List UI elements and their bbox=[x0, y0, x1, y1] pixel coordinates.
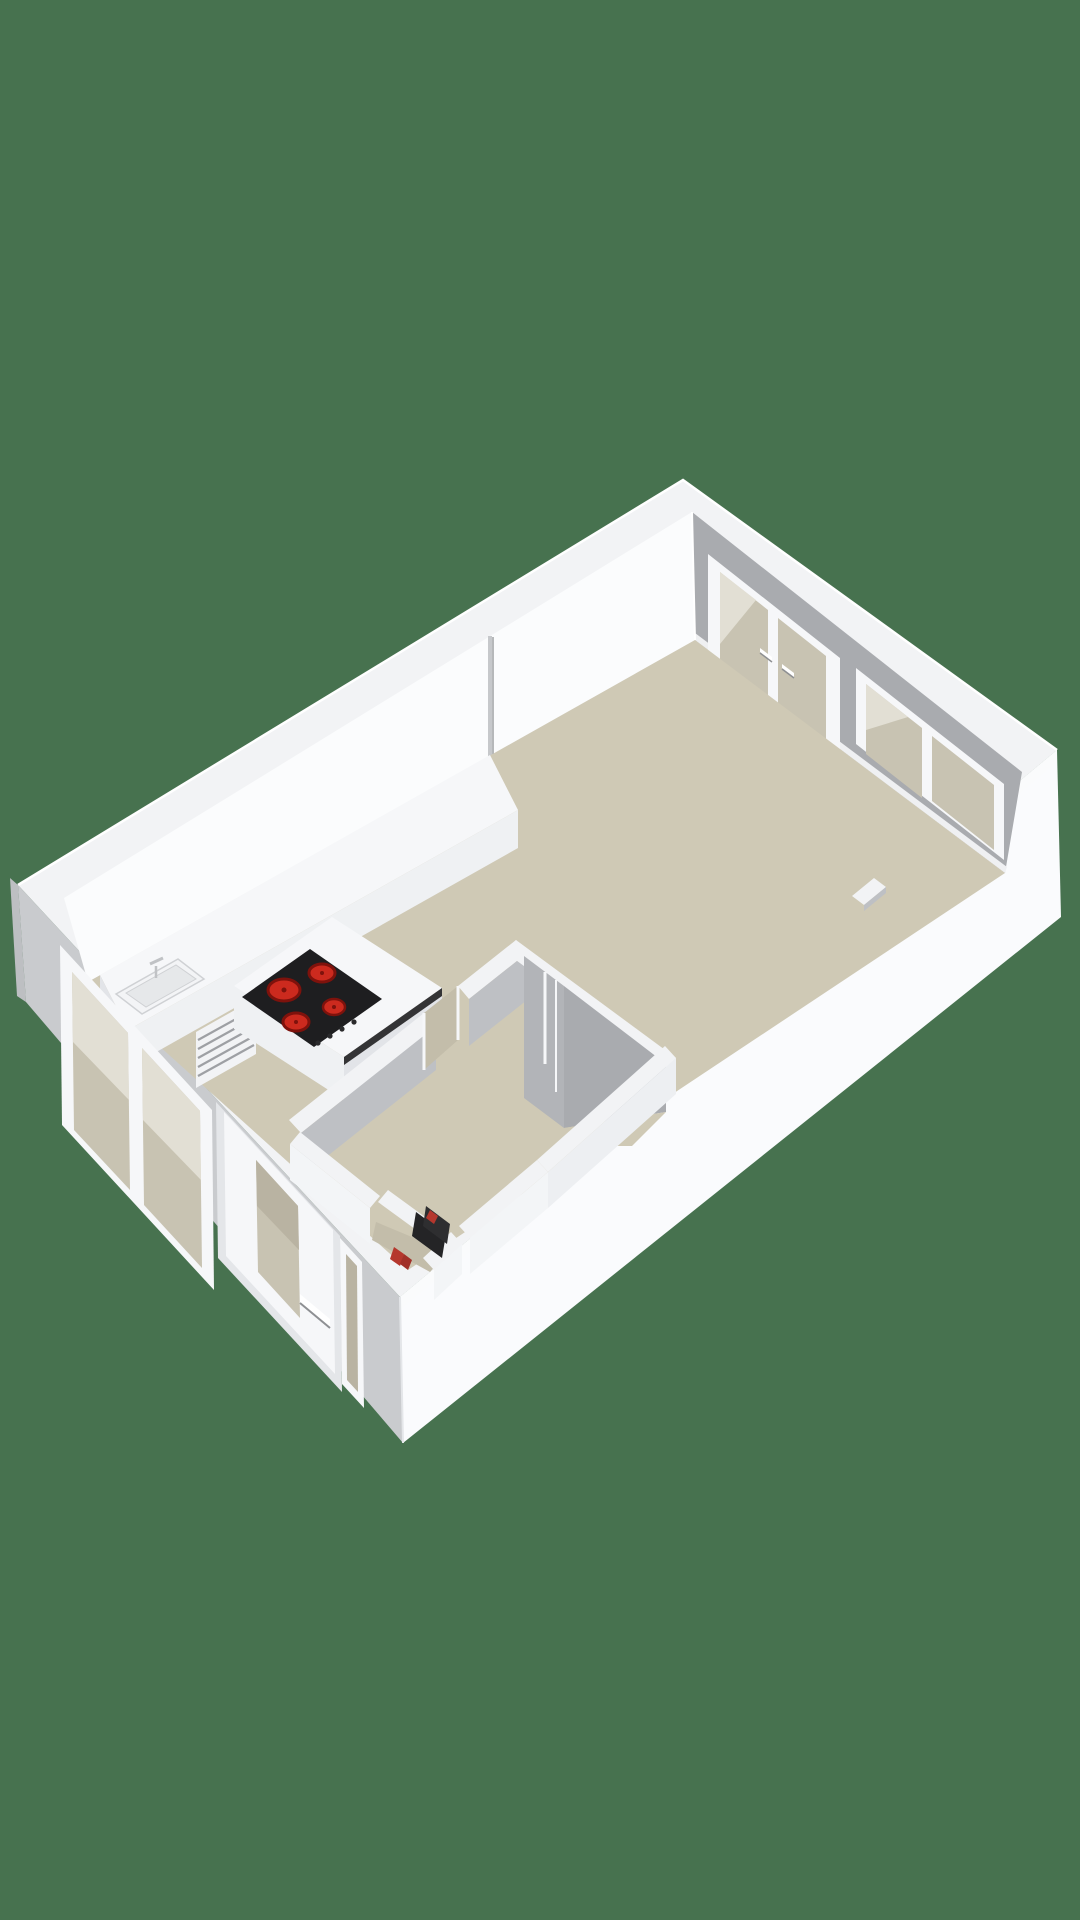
screenshot-root bbox=[0, 0, 1080, 1920]
floorplan-3d-render bbox=[0, 0, 1080, 1920]
sidelight-glass bbox=[346, 1254, 358, 1392]
